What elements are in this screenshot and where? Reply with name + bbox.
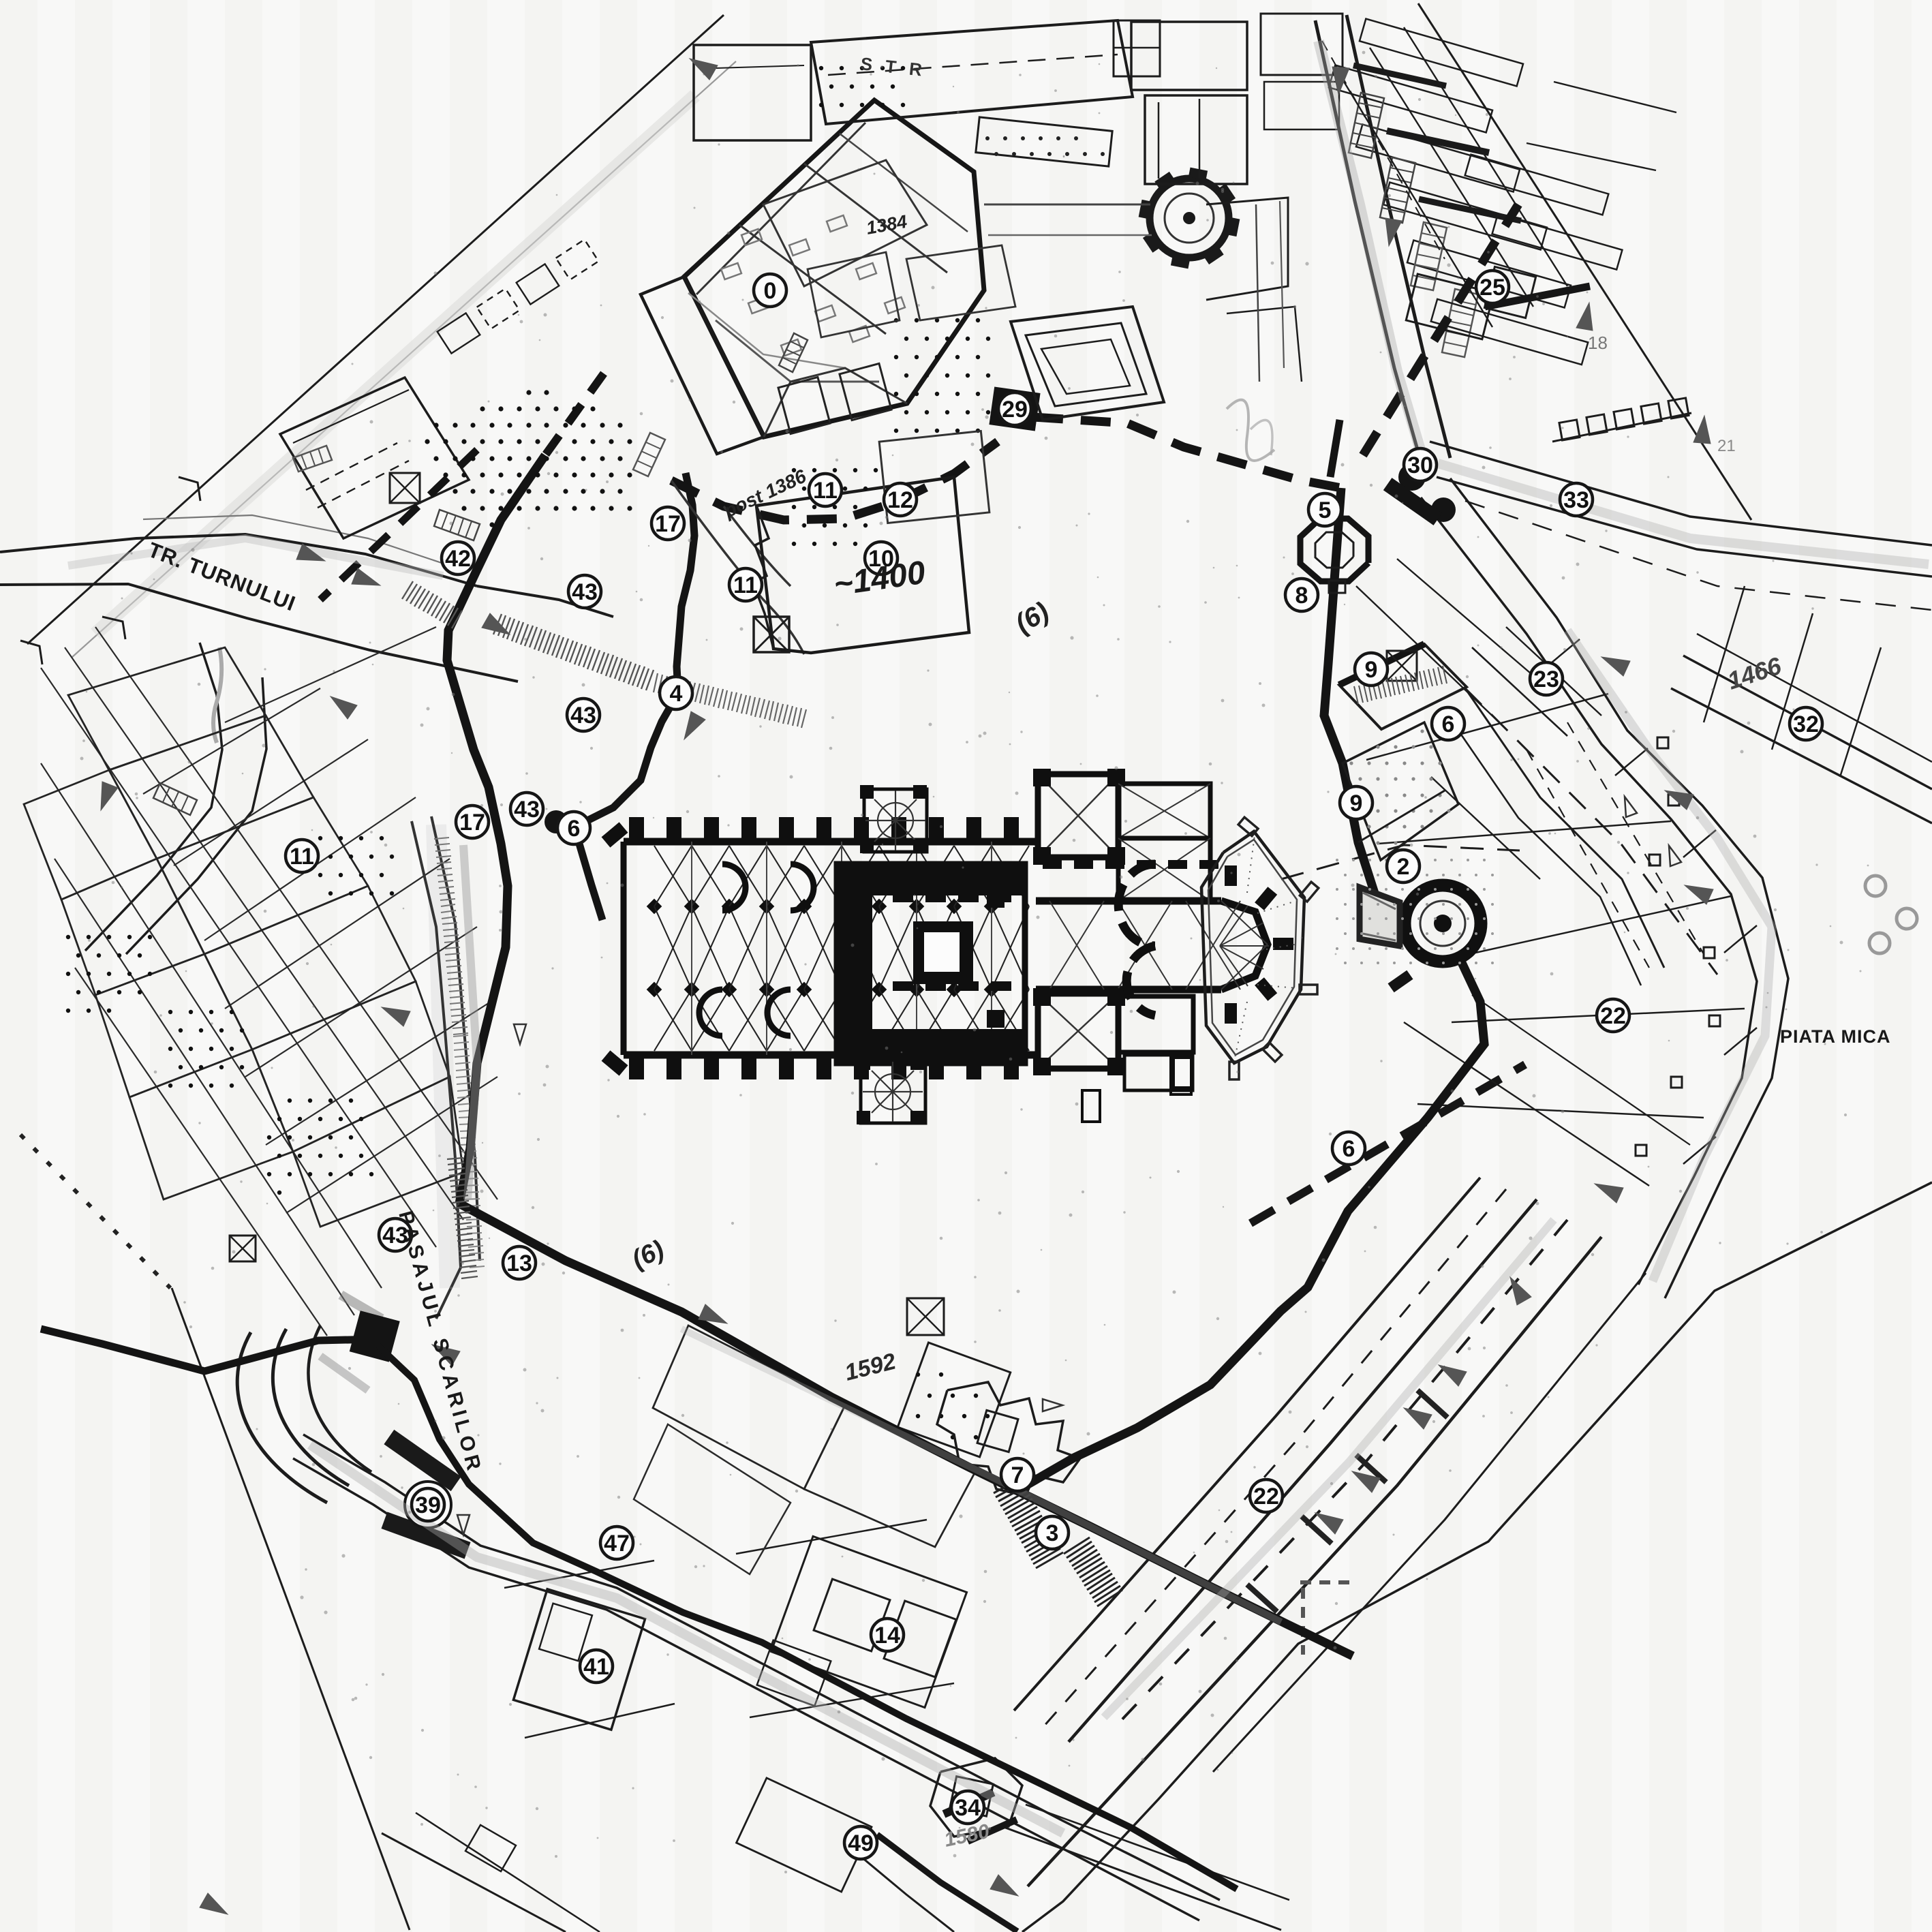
svg-text:30: 30 <box>1407 453 1433 478</box>
svg-text:6: 6 <box>1442 711 1455 737</box>
svg-text:43: 43 <box>514 797 540 823</box>
svg-text:8: 8 <box>1295 583 1308 609</box>
svg-text:17: 17 <box>655 511 681 537</box>
svg-text:47: 47 <box>604 1531 630 1557</box>
svg-text:43: 43 <box>570 703 596 729</box>
svg-text:4: 4 <box>670 681 683 707</box>
svg-text:9: 9 <box>1365 657 1378 683</box>
svg-text:3: 3 <box>1046 1520 1059 1546</box>
svg-text:2: 2 <box>1397 854 1410 880</box>
svg-text:0: 0 <box>764 278 777 304</box>
svg-text:12: 12 <box>887 487 913 513</box>
svg-text:34: 34 <box>955 1795 981 1821</box>
svg-text:PIATA MICA: PIATA MICA <box>1780 1026 1890 1047</box>
svg-text:41: 41 <box>583 1654 609 1680</box>
svg-text:11: 11 <box>290 844 314 870</box>
svg-text:43: 43 <box>572 579 598 605</box>
svg-text:49: 49 <box>848 1830 874 1856</box>
svg-text:29: 29 <box>1002 397 1028 423</box>
svg-text:13: 13 <box>506 1251 532 1276</box>
svg-text:18: 18 <box>1588 333 1608 353</box>
svg-text:32: 32 <box>1793 711 1819 737</box>
svg-text:14: 14 <box>874 1623 900 1649</box>
svg-text:33: 33 <box>1563 487 1589 513</box>
svg-text:22: 22 <box>1253 1484 1279 1509</box>
svg-text:25: 25 <box>1479 275 1505 301</box>
svg-text:23: 23 <box>1533 666 1559 692</box>
svg-text:6: 6 <box>1343 1136 1355 1162</box>
svg-text:42: 42 <box>445 546 471 572</box>
svg-text:5: 5 <box>1319 497 1332 523</box>
svg-text:39: 39 <box>415 1492 441 1518</box>
svg-text:11: 11 <box>733 572 758 598</box>
svg-text:6: 6 <box>568 816 581 842</box>
svg-text:7: 7 <box>1011 1462 1024 1488</box>
svg-text:22: 22 <box>1600 1003 1626 1029</box>
svg-text:17: 17 <box>459 810 485 835</box>
svg-text:21: 21 <box>1717 437 1736 455</box>
svg-text:11: 11 <box>813 478 838 504</box>
svg-text:9: 9 <box>1350 791 1363 816</box>
